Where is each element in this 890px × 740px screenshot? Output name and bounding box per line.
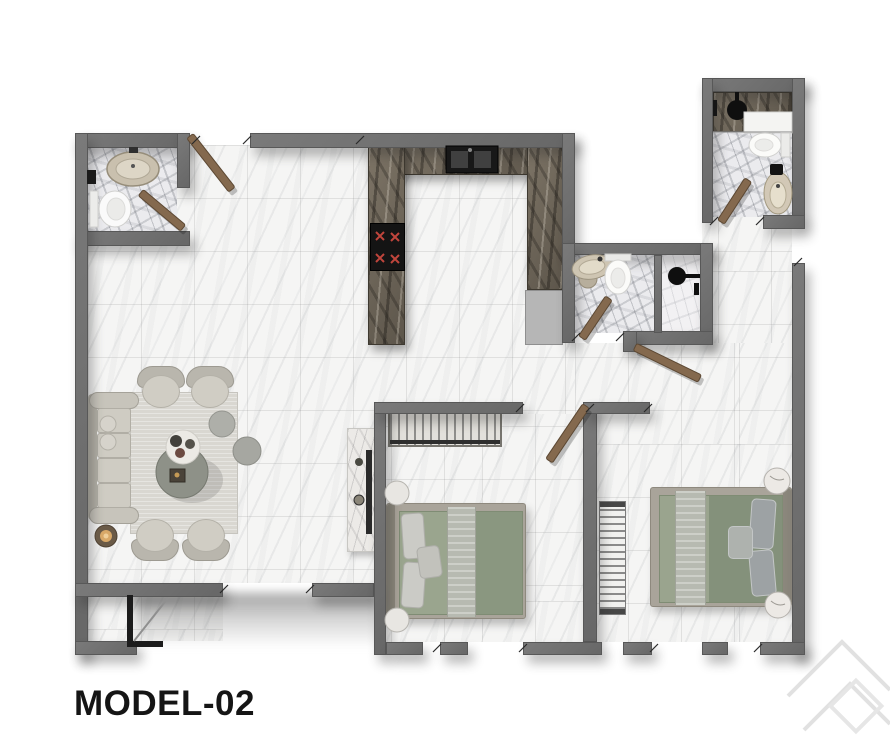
sofa	[88, 392, 142, 522]
wall	[440, 642, 468, 655]
wardrobe-rail	[390, 440, 500, 444]
armchair-seat	[191, 375, 229, 408]
wall	[177, 133, 190, 188]
fridge	[525, 290, 563, 345]
bed-2-headboard	[783, 488, 791, 608]
wall	[75, 133, 190, 148]
wall	[75, 641, 137, 655]
bed-1-accent-pillow	[416, 545, 443, 580]
exterior-shadow	[135, 593, 380, 645]
sofa-back	[88, 394, 97, 520]
bed-2-blanket	[675, 491, 706, 605]
wall	[386, 642, 423, 655]
wall	[623, 642, 652, 655]
tv-console	[347, 428, 375, 552]
armchair-seat	[136, 519, 174, 552]
wall	[583, 402, 650, 414]
bathroom-tl-floor	[88, 148, 177, 231]
wall	[763, 215, 805, 229]
wall	[75, 133, 88, 655]
wall	[562, 133, 575, 253]
wall	[523, 642, 602, 655]
wall	[374, 402, 386, 655]
wall	[75, 231, 190, 246]
wall	[760, 642, 805, 655]
wall	[312, 583, 374, 597]
sofa-cushion	[97, 433, 131, 458]
floor-plan: MODEL-02	[0, 0, 890, 740]
armchair	[186, 366, 234, 411]
sofa-cushion	[97, 483, 131, 508]
sofa-cushion	[97, 458, 131, 483]
wall	[700, 243, 713, 343]
bed-1-headboard	[387, 504, 395, 620]
wall	[702, 78, 713, 223]
wall	[562, 243, 575, 343]
bed-1-blanket	[447, 507, 476, 617]
armchair	[131, 516, 179, 561]
kitchen-counter-right	[527, 145, 563, 290]
shower-mid-floor	[662, 255, 700, 333]
wall	[374, 402, 523, 414]
wall	[562, 243, 713, 255]
wall	[623, 331, 637, 352]
wardrobe	[388, 412, 502, 447]
sofa-cushion	[97, 408, 131, 433]
bed-1	[386, 503, 526, 619]
armchair-seat	[187, 519, 225, 552]
plan-title: MODEL-02	[74, 684, 255, 724]
wall	[75, 583, 223, 597]
armchair-seat	[142, 375, 180, 408]
wall	[702, 642, 728, 655]
wall	[583, 402, 597, 642]
wall	[792, 263, 805, 655]
armchair	[137, 366, 185, 411]
area-rug	[130, 392, 238, 534]
sofa-armrest	[89, 392, 139, 409]
watermark-chevrons-icon	[788, 642, 890, 731]
wall	[792, 78, 805, 220]
shower-tr-floor	[713, 92, 792, 132]
radiator	[599, 501, 626, 615]
hallway-top-floor	[702, 217, 792, 343]
bed-2	[650, 487, 792, 607]
armchair	[182, 516, 230, 561]
cooktop	[370, 223, 405, 271]
wall	[250, 133, 575, 148]
shower-divider-wall	[654, 255, 662, 333]
wall	[702, 78, 805, 92]
bed-2-accent-pillow	[728, 526, 753, 559]
